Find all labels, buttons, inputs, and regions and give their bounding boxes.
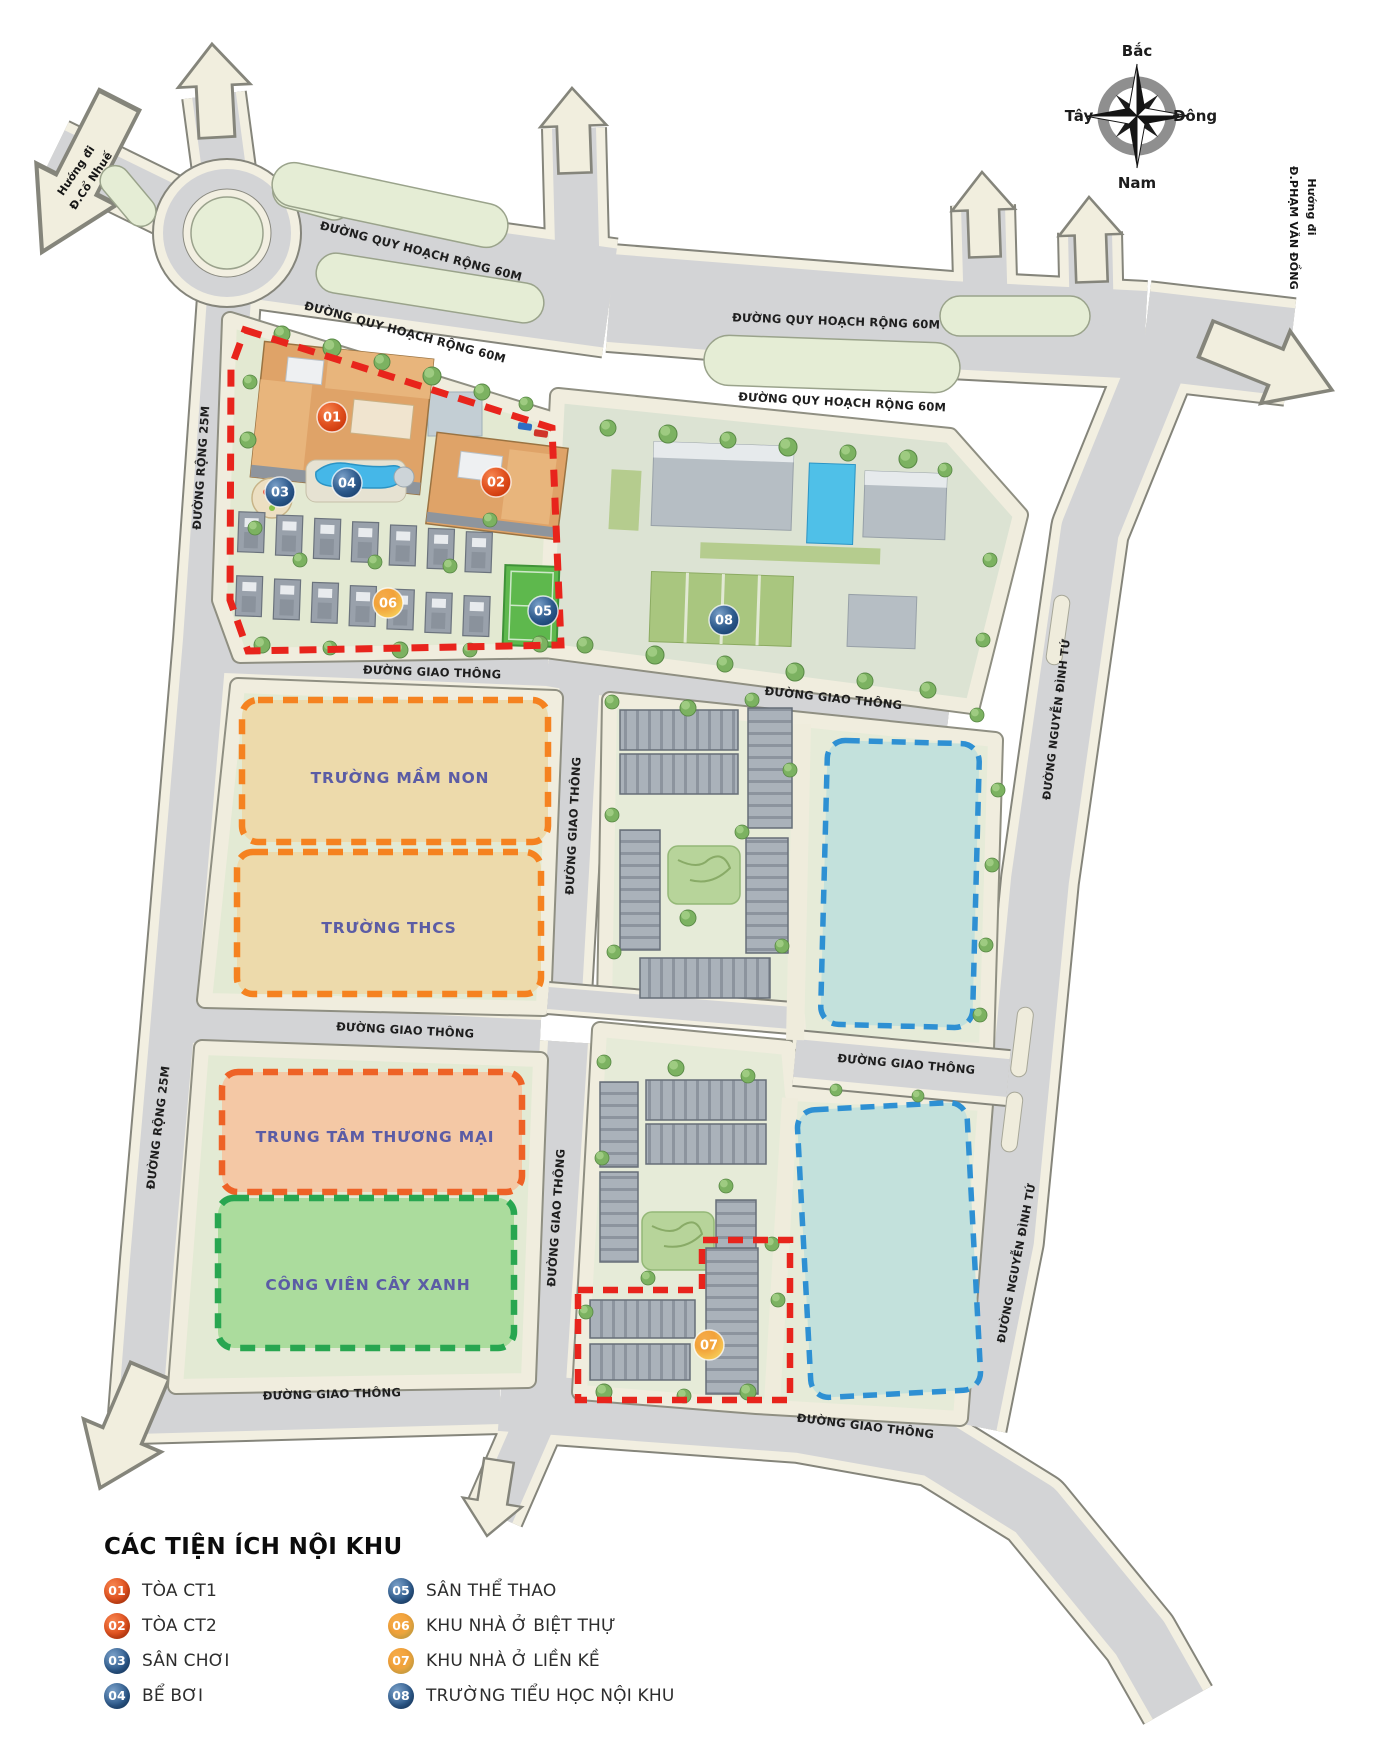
svg-text:02: 02	[487, 476, 505, 491]
sign-pvd-2: Đ.PHẠM VĂN ĐỒNG	[1287, 166, 1302, 290]
svg-text:01: 01	[323, 411, 341, 426]
legend-item-02: 02 TÒA CT2	[104, 1613, 344, 1639]
svg-text:08: 08	[715, 614, 733, 629]
svg-text:05: 05	[534, 605, 552, 620]
zone-reserved-north-area	[820, 740, 979, 1028]
marker-01: 01	[317, 402, 347, 432]
marker-07: 07	[694, 1330, 724, 1360]
zone-reserved-south-area	[797, 1102, 982, 1399]
compass-label-west: Tây	[1065, 107, 1094, 125]
legend-badge-01-icon: 01	[104, 1578, 130, 1604]
zone-label-cong-vien: CÔNG VIÊN CÂY XANH	[265, 1275, 470, 1294]
legend-column-2: 05 SÂN THỂ THAO 06 KHU NHÀ Ở BIỆT THỰ 07…	[388, 1578, 718, 1709]
svg-text:06: 06	[379, 597, 397, 612]
parking-lot	[428, 392, 482, 436]
legend-item-08: 08 TRƯỜNG TIỂU HỌC NỘI KHU	[388, 1683, 718, 1709]
legend-item-label: KHU NHÀ Ở LIỀN KỀ	[426, 1651, 600, 1671]
legend-item-05: 05 SÂN THỂ THAO	[388, 1578, 718, 1604]
legend-item-07: 07 KHU NHÀ Ở LIỀN KỀ	[388, 1648, 718, 1674]
marker-05: 05	[528, 596, 558, 626]
compass-label-south: Nam	[1118, 174, 1156, 192]
marker-03: 03	[265, 477, 295, 507]
legend-item-01: 01 TÒA CT1	[104, 1578, 344, 1604]
zone-label-mam-non: TRƯỜNG MẦM NON	[311, 766, 490, 787]
zone-label-thuong-mai: TRUNG TÂM THƯƠNG MẠI	[256, 1127, 495, 1146]
legend-badge-05-icon: 05	[388, 1578, 414, 1604]
legend-item-label: TÒA CT1	[142, 1581, 217, 1601]
legend-item-04: 04 BỂ BƠI	[104, 1683, 344, 1709]
legend-badge-04-icon: 04	[104, 1683, 130, 1709]
marker-02: 02	[481, 467, 511, 497]
legend: CÁC TIỆN ÍCH NỘI KHU 01 TÒA CT1 02 TÒA C…	[104, 1534, 764, 1709]
marker-04: 04	[332, 468, 362, 498]
legend-item-label: SÂN THỂ THAO	[426, 1581, 556, 1601]
masterplan-map: ĐƯỜNG QUY HOẠCH RỘNG 60M ĐƯỜNG QUY HOẠCH…	[0, 0, 1374, 1741]
svg-text:04: 04	[338, 477, 356, 492]
legend-badge-02-icon: 02	[104, 1613, 130, 1639]
legend-item-label: TÒA CT2	[142, 1616, 217, 1636]
legend-item-06: 06 KHU NHÀ Ở BIỆT THỰ	[388, 1613, 718, 1639]
zone-label-thcs: TRƯỜNG THCS	[321, 918, 456, 937]
compass-label-north: Bắc	[1122, 41, 1152, 60]
compass-label-east: Đông	[1173, 107, 1217, 125]
legend-badge-06-icon: 06	[388, 1613, 414, 1639]
legend-item-label: TRƯỜNG TIỂU HỌC NỘI KHU	[426, 1686, 675, 1706]
legend-item-03: 03 SÂN CHƠI	[104, 1648, 344, 1674]
legend-badge-03-icon: 03	[104, 1648, 130, 1674]
svg-text:03: 03	[271, 486, 289, 501]
svg-text:07: 07	[700, 1339, 718, 1354]
legend-item-label: KHU NHÀ Ở BIỆT THỰ	[426, 1616, 616, 1636]
sign-pvd-1: Hướng đi	[1305, 178, 1318, 235]
legend-badge-07-icon: 07	[388, 1648, 414, 1674]
legend-column-1: 01 TÒA CT1 02 TÒA CT2 03 SÂN CHƠI 04 BỂ …	[104, 1578, 344, 1709]
legend-item-label: BỂ BƠI	[142, 1686, 203, 1706]
marker-08: 08	[709, 605, 739, 635]
legend-badge-08-icon: 08	[388, 1683, 414, 1709]
zone-cong-vien-area	[218, 1198, 514, 1348]
marker-06: 06	[373, 588, 403, 618]
legend-title: CÁC TIỆN ÍCH NỘI KHU	[104, 1534, 764, 1560]
legend-item-label: SÂN CHƠI	[142, 1651, 230, 1671]
masterplan-map-page: ĐƯỜNG QUY HOẠCH RỘNG 60M ĐƯỜNG QUY HOẠCH…	[0, 0, 1374, 1741]
